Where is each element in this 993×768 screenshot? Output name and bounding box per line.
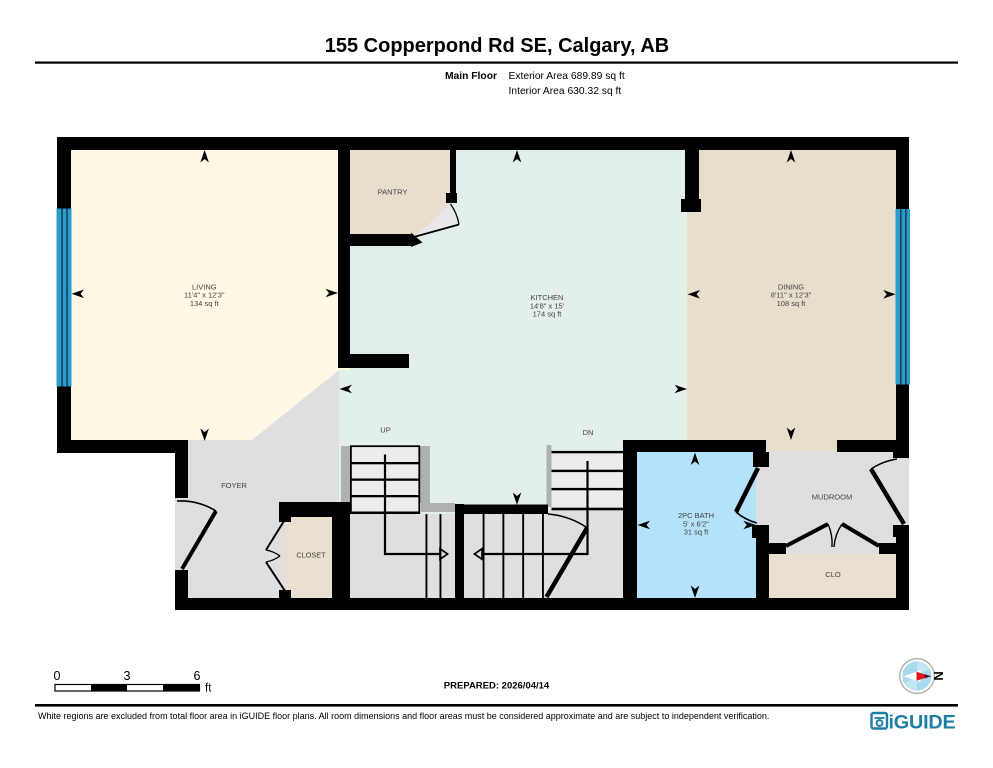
svg-text:Main Floor: Main Floor — [445, 71, 497, 82]
svg-text:Interior Area 630.32 sq ft: Interior Area 630.32 sq ft — [509, 86, 622, 97]
svg-text:31 sq ft: 31 sq ft — [684, 528, 710, 537]
svg-text:FOYER: FOYER — [221, 481, 247, 490]
svg-text:UP: UP — [380, 426, 390, 435]
svg-text:White regions are excluded fro: White regions are excluded from total fl… — [38, 711, 769, 721]
svg-text:CLOSET: CLOSET — [296, 551, 326, 560]
svg-text:0: 0 — [54, 669, 61, 683]
svg-text:3: 3 — [124, 669, 131, 683]
svg-text:PREPARED: 2026/04/14: PREPARED: 2026/04/14 — [444, 681, 550, 692]
svg-text:Exterior Area 689.89 sq ft: Exterior Area 689.89 sq ft — [509, 71, 625, 82]
svg-text:108 sq ft: 108 sq ft — [777, 299, 807, 308]
svg-text:155 Copperpond Rd SE, Calgary,: 155 Copperpond Rd SE, Calgary, AB — [325, 35, 670, 57]
svg-text:DN: DN — [583, 428, 594, 437]
svg-text:iGUIDE: iGUIDE — [889, 712, 956, 734]
svg-text:ft: ft — [205, 683, 212, 695]
svg-text:N: N — [931, 671, 946, 680]
svg-text:6: 6 — [194, 669, 201, 683]
svg-text:174 sq ft: 174 sq ft — [533, 310, 563, 319]
svg-text:MUDROOM: MUDROOM — [812, 493, 852, 502]
svg-text:CLO: CLO — [825, 570, 841, 579]
svg-text:134 sq ft: 134 sq ft — [190, 299, 220, 308]
svg-text:PANTRY: PANTRY — [378, 187, 408, 196]
